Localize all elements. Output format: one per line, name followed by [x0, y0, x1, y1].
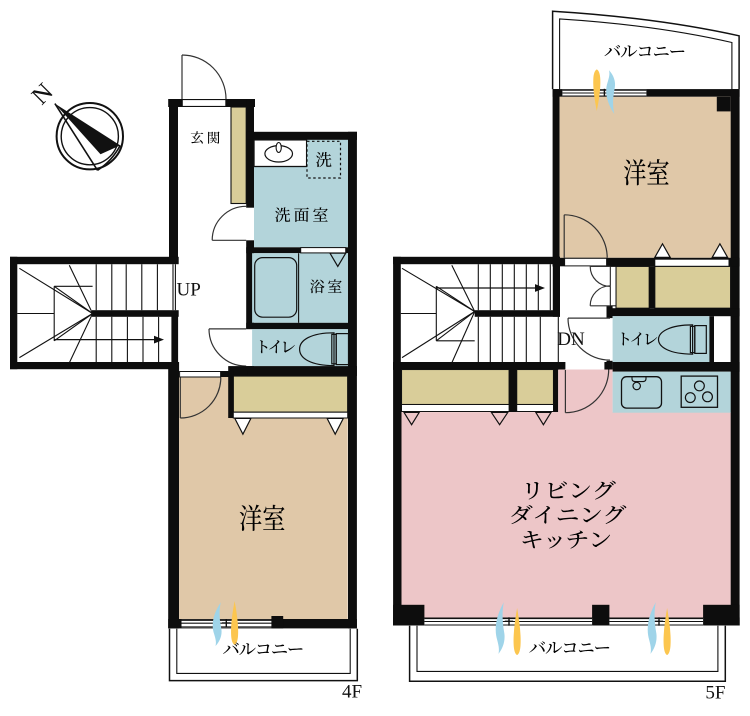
svg-text:5F: 5F: [705, 683, 725, 704]
svg-text:UP: UP: [177, 280, 201, 301]
svg-text:4F: 4F: [342, 681, 362, 702]
svg-text:DN: DN: [557, 329, 585, 350]
